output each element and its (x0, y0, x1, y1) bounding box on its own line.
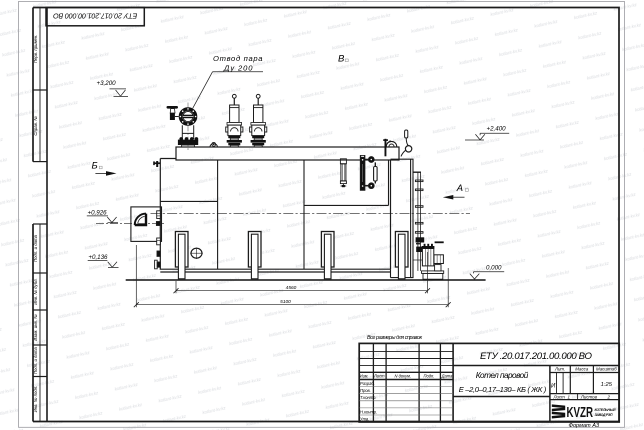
svg-text:2: 2 (607, 395, 611, 400)
svg-text:Справ. №: Справ. № (33, 116, 38, 136)
svg-text:Формат А3: Формат А3 (569, 423, 600, 429)
svg-text:Изм.: Изм. (360, 374, 369, 379)
svg-text:Н.контр.: Н.контр. (360, 409, 377, 414)
svg-text:В: В (338, 54, 345, 65)
svg-text:Перв. примен.: Перв. примен. (33, 35, 38, 64)
svg-text:Ду 200: Ду 200 (223, 63, 253, 72)
svg-text:0,000: 0,000 (486, 265, 502, 272)
svg-text:Инв. № подл.: Инв. № подл. (33, 386, 38, 413)
svg-text:КОТЕЛЬНЫЙ: КОТЕЛЬНЫЙ (595, 408, 616, 412)
svg-text:Лист: Лист (553, 395, 566, 400)
svg-text:5100: 5100 (280, 299, 291, 305)
svg-text:+0,926: +0,926 (88, 209, 108, 216)
svg-text:ЗАВОД РЭП: ЗАВОД РЭП (595, 413, 613, 417)
svg-text:Масса: Масса (575, 366, 589, 371)
svg-text:KVZR: KVZR (567, 405, 594, 421)
svg-text:Лист: Лист (373, 374, 385, 379)
svg-text:Подп.: Подп. (424, 374, 435, 379)
svg-text:Листов: Листов (580, 395, 598, 400)
svg-text:Е –2,0–0,17–130– КБ ( ЖК ): Е –2,0–0,17–130– КБ ( ЖК ) (459, 385, 547, 394)
svg-text:ЕТУ .20.017.201.00.000 ВО: ЕТУ .20.017.201.00.000 ВО (480, 351, 593, 362)
svg-text:+3,200: +3,200 (97, 80, 117, 87)
svg-text:А: А (456, 183, 463, 193)
svg-text:Подп. и дата: Подп. и дата (33, 347, 38, 375)
svg-text:Утв.: Утв. (360, 416, 369, 421)
svg-text:Пров.: Пров. (360, 388, 371, 393)
svg-text:Дата: Дата (441, 374, 454, 379)
svg-text:4560: 4560 (286, 285, 297, 291)
svg-text:Б: Б (92, 161, 98, 172)
svg-text:+0,136: +0,136 (88, 254, 108, 261)
svg-text:Т.контр.: Т.контр. (360, 395, 377, 400)
svg-text:N докум.: N докум. (395, 374, 412, 379)
svg-text:Подп. и дата: Подп. и дата (33, 234, 38, 262)
svg-text:Взам. инв. №: Взам. инв. № (33, 314, 38, 341)
svg-text:Лит.: Лит. (554, 366, 565, 371)
svg-text:+2,400: +2,400 (487, 126, 507, 133)
svg-text:Все размеры для справок: Все размеры для справок (367, 335, 422, 341)
svg-text:Котел паровой: Котел паровой (476, 371, 529, 380)
svg-text:Инв. № дубл.: Инв. № дубл. (33, 278, 38, 304)
svg-text:Масштаб: Масштаб (596, 366, 617, 371)
svg-text:1:25: 1:25 (601, 382, 613, 388)
svg-text:И: И (551, 384, 556, 390)
svg-text:ЕТУ 20.017.201.00.000 ВО: ЕТУ 20.017.201.00.000 ВО (53, 11, 137, 20)
svg-text:Отвод пара: Отвод пара (213, 54, 263, 63)
svg-text:Разраб.: Разраб. (360, 381, 375, 386)
